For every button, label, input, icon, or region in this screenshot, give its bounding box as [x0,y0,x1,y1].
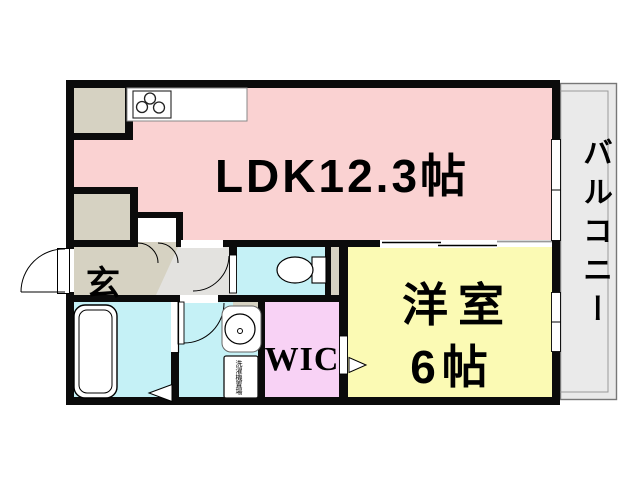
pillar-mid [331,247,339,295]
entrance-door [21,249,70,294]
opening-washroom [180,295,218,303]
wall-mid-b [223,240,380,247]
wall-right-1 [552,80,560,140]
wall-left-upper [66,80,74,249]
wall-alcove-top [130,212,183,218]
label-wic: WIC [265,341,340,379]
wall-low-a [66,295,180,302]
closet-top-left [74,88,125,133]
toilet-icon [277,257,326,283]
floorplan-drawing [0,0,640,480]
stove-icon [133,91,171,118]
kitchen [127,88,247,121]
wall-right-2 [552,240,560,292]
label-washer: 洗濯機置場 [233,360,243,395]
label-genkan: 玄 [86,256,120,305]
wall-low-b [218,295,348,302]
opening-sliding-door [380,240,497,248]
wall-bottom [66,397,560,405]
label-balcony: バルコニー [572,137,616,332]
wall-mid-a [66,240,138,247]
floorplan-canvas: LDK12.3帖 洋室 6帖 WIC 玄 バルコニー 洗濯機置場 [0,0,640,480]
sink-icon [222,306,261,352]
label-western-room-2: 6帖 [410,331,494,397]
wall-closet2-top [66,187,138,194]
wall-right-3 [552,352,560,405]
wall-western-left [339,247,348,398]
label-ldk: LDK12.3帖 [215,140,469,206]
closet-mid-left [74,194,130,242]
shoe-cabinet-alcove [138,218,176,242]
label-western-room-1: 洋室 [402,269,514,335]
western-door-panel [340,336,348,374]
bathtub-icon [74,305,117,398]
wall-closet1-bottom [74,133,133,140]
wall-left-lower [66,292,74,405]
entrance-door-panel [58,249,70,294]
toilet-door-panel [230,255,237,293]
opening-ldk-hall [181,240,223,248]
wall-top [66,80,560,88]
